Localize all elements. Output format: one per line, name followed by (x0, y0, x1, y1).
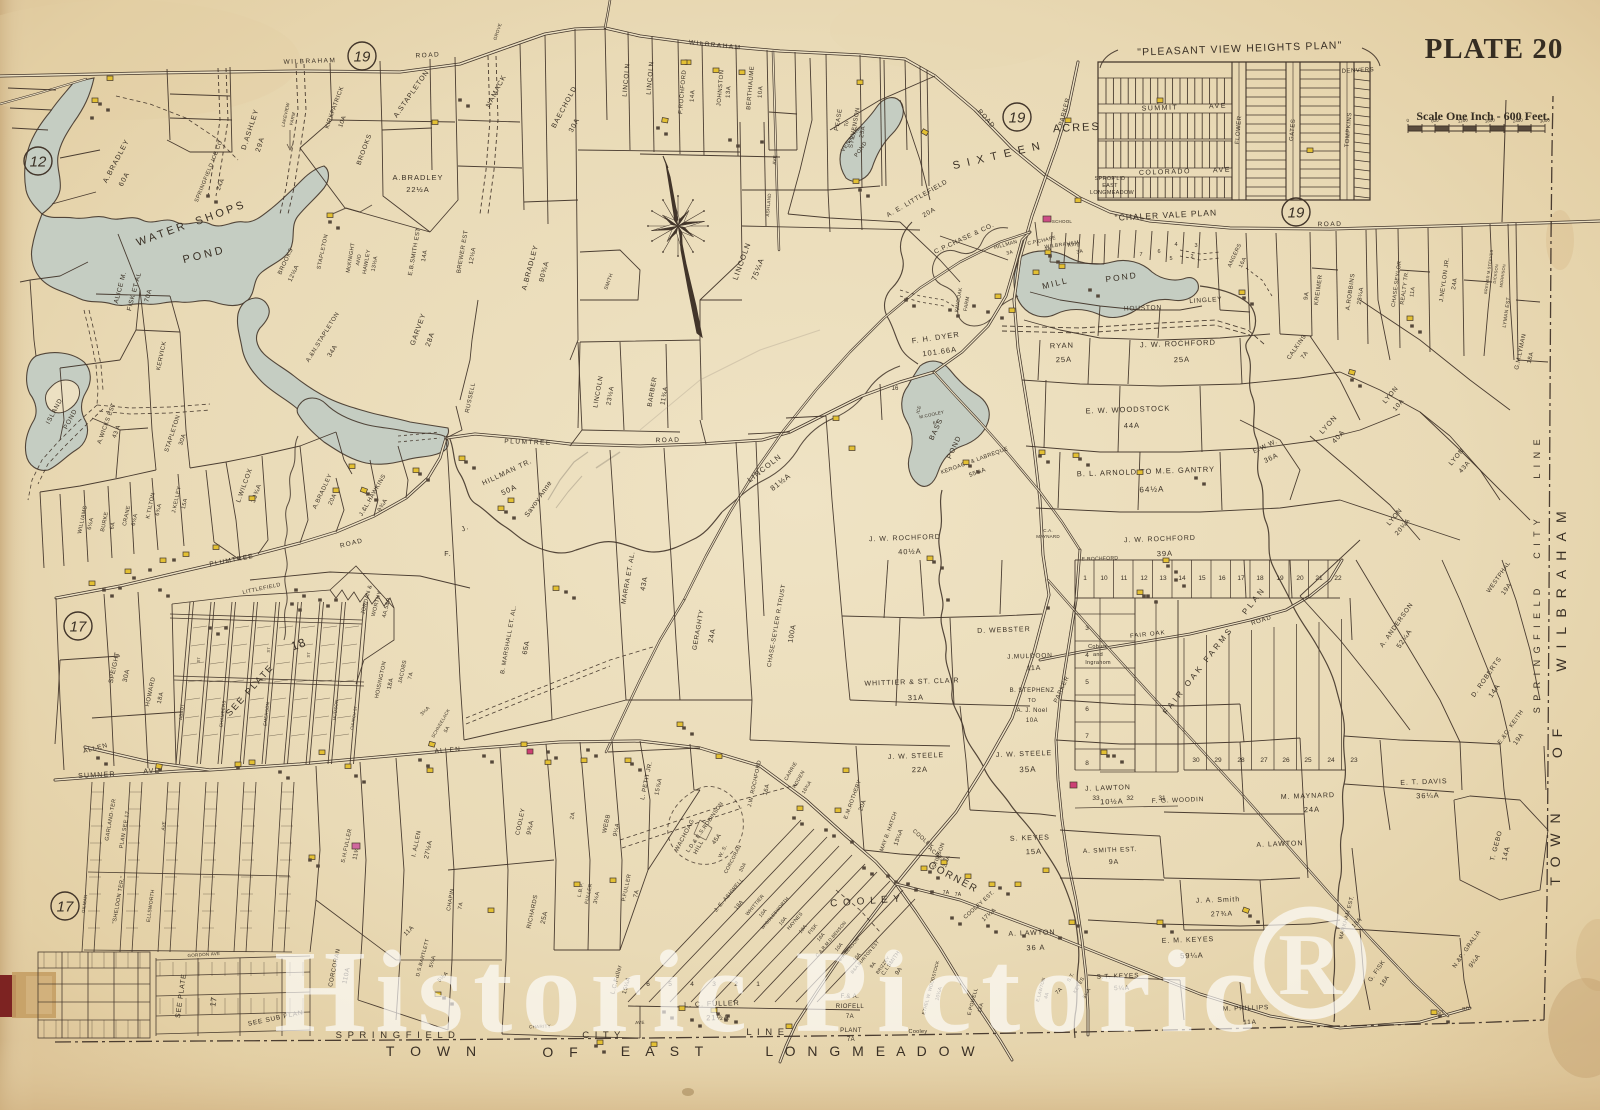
svg-text:7: 7 (1085, 733, 1089, 740)
svg-text:AVE: AVE (1209, 103, 1227, 111)
svg-text:HOUSTON: HOUSTON (1124, 304, 1162, 312)
svg-text:25: 25 (1304, 757, 1312, 764)
svg-text:32: 32 (1126, 795, 1134, 802)
svg-text:R: R (1278, 917, 1343, 1014)
svg-text:RD: RD (1462, 1005, 1470, 1011)
svg-text:S P R I N G F I E L D: S P R I N G F I E L D (1532, 587, 1542, 714)
svg-text:18: 18 (1256, 575, 1264, 582)
svg-text:17: 17 (70, 618, 87, 635)
svg-text:24A: 24A (1304, 805, 1321, 815)
svg-text:20: 20 (1296, 575, 1304, 582)
svg-text:35A: 35A (1019, 765, 1037, 775)
svg-text:PLATE 20: PLATE 20 (1425, 33, 1564, 65)
svg-text:ROAD: ROAD (415, 51, 440, 59)
svg-text:5: 5 (1085, 679, 1089, 686)
svg-text:22A: 22A (912, 765, 929, 775)
svg-text:SPROF'L'D: SPROF'L'D (1095, 176, 1126, 182)
svg-text:ST: ST (266, 646, 272, 652)
svg-text:22: 22 (1334, 575, 1342, 582)
svg-text:A.BRADLEY: A.BRADLEY (392, 173, 443, 182)
svg-text:36¼A: 36¼A (1416, 791, 1440, 801)
svg-text:T O W N: T O W N (1547, 810, 1563, 885)
svg-text:A. J. Noel: A. J. Noel (1016, 708, 1047, 714)
svg-text:31A: 31A (908, 693, 925, 703)
svg-text:15: 15 (1198, 575, 1206, 582)
svg-text:16: 16 (892, 386, 899, 392)
svg-text:23: 23 (1350, 757, 1358, 764)
svg-text:9A: 9A (1303, 291, 1310, 300)
svg-text:E.ROCHFORD: E.ROCHFORD (1082, 555, 1119, 562)
svg-text:15A: 15A (1026, 847, 1043, 857)
svg-text:Historic Pictoric: Historic Pictoric (274, 926, 1264, 1057)
svg-text:39A: 39A (1157, 549, 1174, 559)
svg-text:27: 27 (1260, 757, 1268, 764)
svg-text:O F: O F (1549, 726, 1565, 758)
svg-text:14: 14 (1178, 575, 1186, 582)
svg-text:S. KEYES: S. KEYES (1010, 834, 1050, 842)
svg-text:33: 33 (1092, 795, 1100, 802)
svg-text:ACRES: ACRES (1053, 121, 1101, 135)
svg-text:24: 24 (1327, 757, 1335, 764)
svg-text:17: 17 (1237, 575, 1245, 582)
svg-text:19: 19 (354, 48, 371, 65)
svg-text:6: 6 (1157, 249, 1160, 255)
svg-text:7A: 7A (457, 902, 464, 910)
svg-text:17: 17 (208, 996, 218, 1007)
svg-text:7A: 7A (955, 892, 962, 898)
svg-text:B. STEPHENZ: B. STEPHENZ (1010, 688, 1055, 694)
svg-text:ST: ST (306, 651, 312, 657)
svg-text:19: 19 (1288, 204, 1305, 221)
svg-text:10½A: 10½A (1100, 797, 1124, 807)
svg-text:F.: F. (444, 551, 451, 558)
svg-text:14A: 14A (689, 90, 696, 103)
svg-text:10: 10 (1100, 575, 1108, 582)
svg-text:SCHOOL: SCHOOL (1052, 219, 1073, 224)
svg-text:AVE: AVE (1213, 167, 1231, 175)
svg-text:AVE: AVE (143, 768, 160, 776)
svg-text:10A: 10A (1026, 718, 1038, 724)
svg-text:LONGMEADOW: LONGMEADOW (1090, 190, 1134, 196)
svg-text:25A: 25A (1174, 355, 1191, 365)
svg-text:SUMMIT: SUMMIT (1142, 104, 1179, 112)
svg-text:8: 8 (1085, 760, 1089, 767)
svg-text:44A: 44A (1124, 421, 1141, 431)
svg-text:11: 11 (1121, 575, 1128, 582)
svg-text:C.A.: C.A. (1043, 528, 1053, 533)
svg-text:4: 4 (1174, 242, 1177, 248)
svg-text:2: 2 (1190, 254, 1193, 260)
svg-text:ROAD: ROAD (1318, 221, 1343, 228)
svg-text:19: 19 (1009, 109, 1026, 126)
svg-text:12: 12 (30, 153, 47, 170)
svg-text:Ingrahom: Ingrahom (1085, 660, 1111, 666)
svg-text:C I T Y: C I T Y (1532, 517, 1542, 559)
svg-text:W I L B R A H A M: W I L B R A H A M (1553, 508, 1569, 671)
svg-text:10A: 10A (757, 86, 764, 99)
svg-text:25A: 25A (1056, 355, 1073, 365)
svg-text:and: and (1093, 652, 1103, 658)
svg-text:7: 7 (1139, 252, 1142, 258)
svg-text:EAST: EAST (1102, 183, 1118, 189)
svg-text:MAYNARD: MAYNARD (1036, 534, 1060, 539)
svg-text:16: 16 (1218, 575, 1226, 582)
svg-text:22½A: 22½A (406, 185, 430, 194)
svg-text:TO: TO (1028, 698, 1037, 704)
svg-text:Coburn: Coburn (1088, 644, 1108, 650)
svg-text:40½A: 40½A (898, 547, 922, 557)
svg-text:30: 30 (1192, 757, 1200, 764)
svg-text:6: 6 (1085, 706, 1089, 713)
svg-text:9A: 9A (1109, 859, 1119, 866)
svg-text:29: 29 (1214, 757, 1222, 764)
svg-text:RYAN: RYAN (1050, 341, 1074, 351)
svg-text:4: 4 (1085, 652, 1089, 659)
svg-text:3: 3 (1085, 625, 1089, 632)
svg-text:13A: 13A (725, 86, 732, 99)
svg-text:26: 26 (1282, 757, 1290, 764)
svg-text:To: To (844, 120, 851, 127)
svg-text:ST: ST (196, 656, 202, 662)
svg-text:ROAD: ROAD (656, 437, 681, 444)
svg-text:L I N E: L I N E (1532, 437, 1542, 478)
svg-text:1: 1 (1083, 575, 1087, 582)
svg-text:64½A: 64½A (1139, 485, 1164, 495)
svg-text:AVE: AVE (772, 155, 778, 165)
svg-text:5: 5 (1169, 256, 1172, 262)
svg-text:12: 12 (1140, 575, 1148, 582)
svg-text:7A: 7A (943, 890, 950, 896)
svg-text:3: 3 (1194, 243, 1197, 249)
svg-text:17: 17 (57, 898, 74, 915)
svg-text:13: 13 (1159, 575, 1167, 582)
svg-text:27¾A: 27¾A (1211, 911, 1234, 919)
svg-text:19: 19 (1276, 575, 1284, 582)
svg-text:11A: 11A (1027, 665, 1042, 672)
